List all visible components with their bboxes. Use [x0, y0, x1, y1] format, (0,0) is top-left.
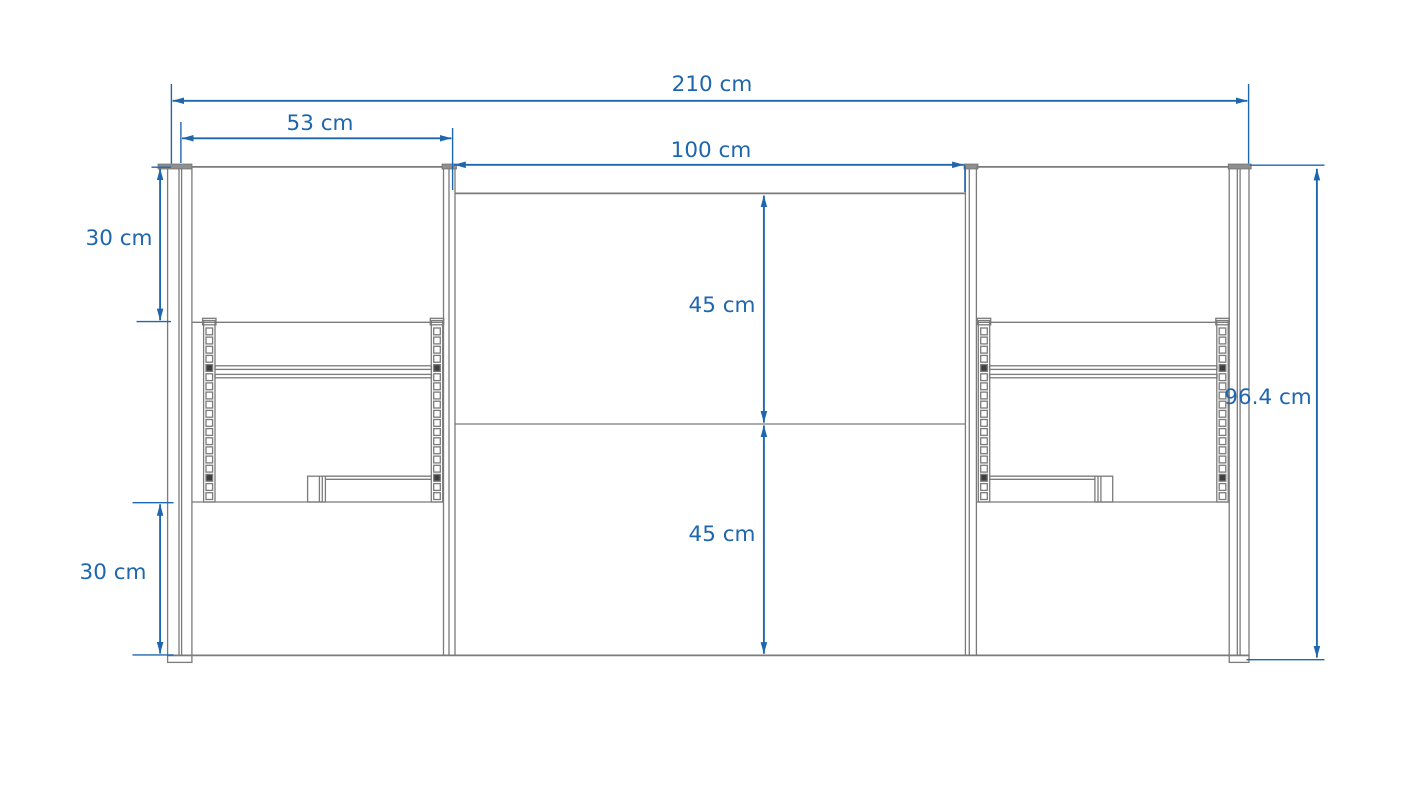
rail-hole [434, 456, 441, 463]
rail-hole [206, 346, 213, 353]
left-section-width-label: 53 cm [287, 111, 354, 136]
dim-left-upper-height: 30 cm [86, 167, 171, 321]
right-shelf-bar-lower [990, 374, 1218, 377]
right-post [1228, 164, 1251, 662]
rail-hole [434, 383, 441, 390]
rail-hole [1219, 474, 1226, 481]
dim-total-height: 96.4 cm [1224, 165, 1324, 660]
left-section-left-rail [203, 318, 216, 502]
left-shelf-bracket [308, 476, 326, 502]
rail-hole [434, 337, 441, 344]
rail-hole [206, 410, 213, 417]
rail-hole [981, 355, 988, 362]
rail-hole [206, 493, 213, 500]
rail-hole [206, 465, 213, 472]
rail-hole [1219, 337, 1226, 344]
rail-hole [981, 346, 988, 353]
rail-hole [981, 337, 988, 344]
rail-hole [434, 365, 441, 372]
right-divider-top-cap [964, 164, 978, 169]
left-upper-height-label: 30 cm [86, 226, 153, 251]
left-section-right-rail [430, 318, 443, 502]
rail-hole [434, 493, 441, 500]
rail-hole [981, 484, 988, 491]
rail-hole [1219, 328, 1226, 335]
rail-hole [434, 346, 441, 353]
left-lower-height-label: 30 cm [80, 560, 147, 585]
rail-hole [434, 447, 441, 454]
rail-hole [981, 429, 988, 436]
rail-hole [206, 456, 213, 463]
rail-hole [434, 401, 441, 408]
left-shelf-bar-lower [215, 374, 432, 377]
rail-hole [206, 392, 213, 399]
rail-hole [981, 456, 988, 463]
rail-hole [434, 438, 441, 445]
headboard-outline [158, 164, 1251, 662]
rail-hole [981, 392, 988, 399]
dim-center-upper-height: 45 cm [689, 196, 764, 423]
center-upper-height-label: 45 cm [689, 293, 756, 318]
rail-hole [981, 383, 988, 390]
rail-hole [981, 365, 988, 372]
rail-hole [981, 410, 988, 417]
rail-top-cap [203, 318, 216, 325]
rail-hole [206, 474, 213, 481]
rail-hole [981, 401, 988, 408]
rail-hole [434, 392, 441, 399]
left-section [192, 167, 444, 502]
total-height-label: 96.4 cm [1224, 385, 1311, 410]
center-lower-height-label: 45 cm [689, 522, 756, 547]
rail-hole [434, 410, 441, 417]
rail-hole [1219, 484, 1226, 491]
total-width-label: 210 cm [672, 72, 753, 97]
rail-hole [206, 383, 213, 390]
rail-hole [1219, 493, 1226, 500]
rail-hole [206, 447, 213, 454]
rail-hole [981, 493, 988, 500]
rail-hole [981, 420, 988, 427]
rail-hole [1219, 355, 1226, 362]
rail-top-cap [1216, 318, 1229, 325]
rail-hole [1219, 410, 1226, 417]
rail-hole [434, 429, 441, 436]
rail-hole [206, 420, 213, 427]
right-divider-post [964, 164, 978, 655]
rail-hole [434, 484, 441, 491]
rail-hole [981, 328, 988, 335]
outline-segment [1229, 167, 1249, 656]
rail-hole [206, 401, 213, 408]
rail-top-cap [430, 318, 443, 325]
left-post [158, 164, 192, 662]
rail-hole [434, 355, 441, 362]
rail-hole [1219, 438, 1226, 445]
right-section-left-rail [977, 318, 990, 502]
headboard-drawing: 210 cm 53 cm 100 cm 30 cm 30 cm [0, 0, 1420, 799]
dim-left-lower-height: 30 cm [80, 503, 174, 655]
rail-hole [1219, 374, 1226, 381]
outline-segment [168, 167, 192, 656]
rail-hole [981, 447, 988, 454]
rail-hole [981, 465, 988, 472]
rail-hole [206, 328, 213, 335]
rail-hole [1219, 420, 1226, 427]
rail-hole [434, 465, 441, 472]
rail-hole [206, 365, 213, 372]
rail-hole [1219, 429, 1226, 436]
rail-hole [206, 355, 213, 362]
rail-hole [1219, 447, 1226, 454]
rail-hole [434, 374, 441, 381]
left-shelf-bar-upper [215, 366, 432, 370]
left-post-foot [168, 655, 192, 662]
rail-hole [981, 438, 988, 445]
rail-hole [1219, 365, 1226, 372]
rail-hole [206, 429, 213, 436]
right-shelf-bracket [1095, 476, 1113, 502]
rail-hole [1219, 456, 1226, 463]
rail-hole [1219, 346, 1226, 353]
right-section [976, 167, 1229, 502]
rail-hole [1219, 465, 1226, 472]
rail-hole [434, 328, 441, 335]
rail-hole [434, 474, 441, 481]
right-post-top-cap [1228, 164, 1251, 169]
right-section-right-rail [1216, 318, 1229, 502]
right-shelf-bar-upper [990, 366, 1218, 370]
rail-hole [981, 474, 988, 481]
dim-center-lower-height: 45 cm [689, 426, 764, 654]
rail-hole [981, 374, 988, 381]
rail-hole [206, 374, 213, 381]
rail-hole [434, 420, 441, 427]
rail-top-cap [977, 318, 990, 325]
dim-center-section-width: 100 cm [454, 138, 965, 192]
technical-drawing-canvas: 210 cm 53 cm 100 cm 30 cm 30 cm [0, 0, 1420, 799]
rail-hole [206, 484, 213, 491]
rail-hole [206, 337, 213, 344]
dim-left-section-width: 53 cm [181, 111, 453, 190]
center-section-width-label: 100 cm [671, 138, 752, 163]
right-post-foot [1229, 655, 1249, 662]
left-divider-post [442, 164, 457, 655]
rail-hole [206, 438, 213, 445]
shelf-rails [203, 318, 1230, 502]
